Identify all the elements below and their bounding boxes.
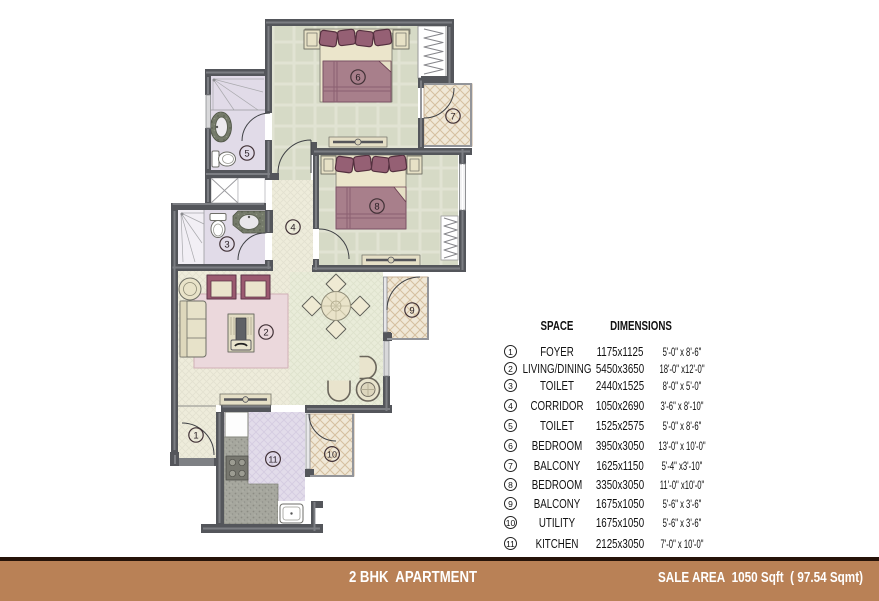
svg-text:2: 2 <box>263 328 268 339</box>
svg-text:3: 3 <box>224 240 229 251</box>
svg-text:6: 6 <box>355 73 360 84</box>
svg-text:7: 7 <box>450 112 455 123</box>
svg-text:4: 4 <box>290 223 295 234</box>
svg-text:9: 9 <box>409 306 414 317</box>
svg-text:8: 8 <box>374 202 379 213</box>
svg-text:5: 5 <box>244 149 249 160</box>
